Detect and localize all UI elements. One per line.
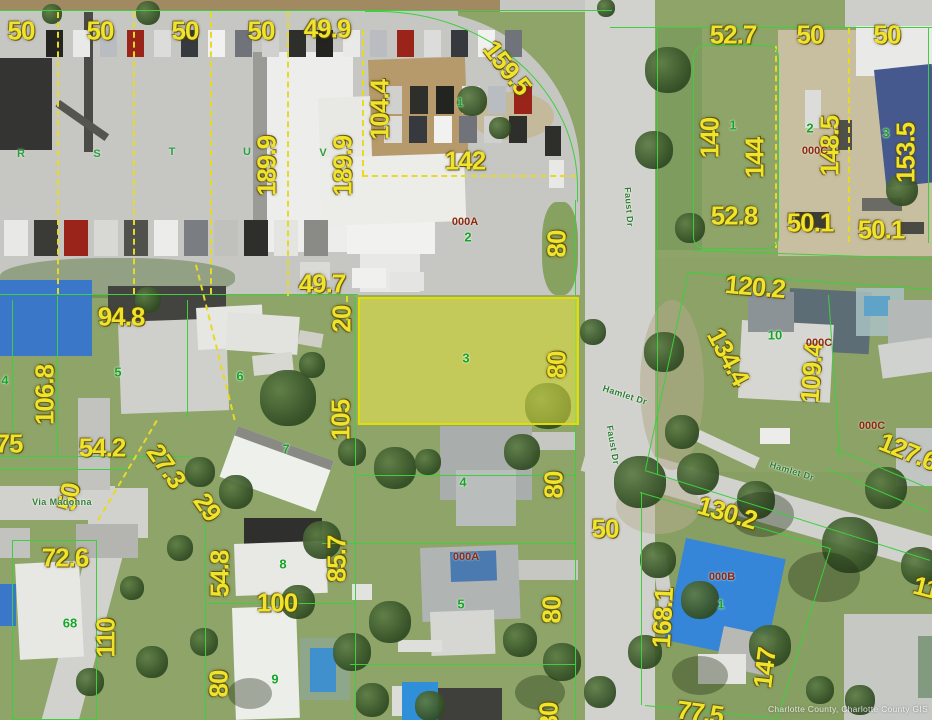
parcel-line: [187, 300, 188, 418]
unit-label: 000C: [802, 145, 828, 157]
dimension-label: 52.8: [711, 201, 758, 232]
survey-dashed-line: [210, 12, 212, 294]
block-letter-label: V: [319, 147, 326, 159]
block-letter-label: S: [93, 148, 100, 160]
building: [864, 296, 890, 316]
building: [0, 280, 92, 356]
dimension-label: 75: [0, 429, 22, 460]
dimension-label: 94.8: [98, 302, 145, 333]
lot-number-label: 5: [114, 365, 121, 380]
dimension-label: 109.4: [794, 342, 829, 404]
lot-number-label: 1: [729, 118, 736, 133]
dimension-label: 50.1: [787, 208, 834, 239]
dimension-label: 50: [8, 16, 35, 47]
dimension-label: 80: [537, 597, 568, 624]
tree: [597, 0, 615, 17]
tree: [42, 4, 62, 24]
lot-number-label: 6: [236, 369, 243, 384]
block-letter-label: R: [17, 148, 25, 160]
parcel-line: [928, 28, 929, 243]
car: [64, 220, 88, 256]
tree: [665, 415, 699, 449]
road: [510, 560, 578, 580]
building: [225, 312, 299, 355]
parcel-line: [322, 543, 575, 544]
dimension-label: 189.9: [328, 136, 359, 196]
parcel-line: [0, 10, 612, 11]
tree: [806, 676, 834, 704]
tree: [503, 623, 537, 657]
tree: [333, 633, 371, 671]
tree-shadow: [228, 678, 272, 709]
tree: [504, 434, 540, 470]
parcel-line: [0, 469, 130, 470]
car: [127, 30, 144, 57]
tree: [635, 131, 673, 169]
tree: [415, 449, 441, 475]
lot-number-label: 1: [717, 597, 724, 612]
car: [304, 220, 328, 256]
parcel-line: [355, 297, 356, 720]
building: [398, 640, 442, 652]
dimension-label: 140: [695, 118, 726, 158]
lot-number-label: 4: [1, 373, 8, 388]
dimension-label: 50: [592, 514, 619, 545]
tree-shadow: [788, 552, 860, 602]
tree: [645, 47, 691, 93]
dimension-label: 153.5: [891, 123, 922, 183]
tree: [681, 581, 719, 619]
car: [274, 220, 298, 256]
lot-number-label: 10: [768, 328, 782, 343]
building: [352, 268, 386, 288]
lot-number-label: 2: [464, 230, 471, 245]
tree: [120, 576, 144, 600]
dimension-label: 80: [204, 671, 235, 698]
dimension-label: 147: [747, 646, 783, 690]
lot-number-label: 3: [462, 351, 469, 366]
dimension-label: 80: [542, 352, 573, 379]
dimension-label: 106.8: [30, 365, 61, 425]
building: [878, 337, 932, 378]
dimension-label: 80: [539, 472, 570, 499]
lot-number-label: 3: [882, 126, 889, 141]
car: [214, 220, 238, 256]
tree: [190, 628, 218, 656]
lot-number-label: 9: [271, 672, 278, 687]
unit-label: 000A: [452, 216, 478, 228]
dimension-label: 20: [327, 306, 358, 333]
block-letter-label: T: [169, 146, 176, 158]
tree: [136, 646, 168, 678]
lot-number-label: 8: [279, 557, 286, 572]
dimension-label: 72.6: [42, 543, 89, 574]
building: [438, 688, 502, 720]
tree: [584, 676, 616, 708]
dimension-label: 80: [534, 703, 565, 720]
building: [298, 330, 324, 348]
gis-watermark: Charlotte County, Charlotte County GIS: [768, 704, 928, 714]
dimension-label: 144: [740, 138, 771, 178]
dimension-label: 49.7: [299, 269, 346, 300]
car: [760, 428, 790, 444]
car: [4, 220, 28, 256]
survey-dashed-line: [287, 12, 289, 296]
unit-label: 000C: [859, 420, 885, 432]
dimension-label: 50: [172, 16, 199, 47]
unit-label: 000A: [453, 551, 479, 563]
dimension-label: 27.3: [140, 438, 192, 494]
tree: [580, 319, 606, 345]
survey-dashed-line: [133, 12, 135, 294]
tree: [299, 352, 325, 378]
lot-number-label: 68: [63, 616, 77, 631]
dimension-label: 80: [542, 231, 573, 258]
building: [390, 272, 424, 291]
tree: [338, 438, 366, 466]
dimension-label: 85.7: [322, 536, 353, 583]
dimension-label: 105: [326, 400, 357, 440]
dimension-label: 52.7: [710, 20, 757, 51]
dimension-label: 168.1: [646, 587, 680, 649]
gis-aerial-parcel-map[interactable]: 5050505049.9159.5104.4189.9189.91428052.…: [0, 0, 932, 720]
car: [244, 220, 268, 256]
lot-number-label: 4: [459, 475, 466, 490]
dimension-label: 49.9: [304, 14, 351, 45]
dimension-label: 50.1: [858, 215, 905, 246]
block-letter-label: U: [243, 146, 251, 158]
tree: [136, 1, 160, 25]
tree: [167, 535, 193, 561]
lot-number-label: 2: [806, 121, 813, 136]
tree-shadow: [672, 656, 728, 695]
tree: [677, 453, 719, 495]
tree: [369, 601, 411, 643]
dimension-label: 104.4: [365, 80, 396, 140]
dimension-label: 50: [797, 20, 824, 51]
dimension-label: 50: [248, 16, 275, 47]
tree: [614, 456, 666, 508]
parcel-line: [350, 664, 575, 665]
tree: [415, 691, 445, 720]
building: [918, 636, 932, 698]
car: [94, 220, 118, 256]
street-name-label: Via Madonna: [32, 497, 92, 507]
lot-number-label: 1: [456, 95, 463, 110]
lot-number-label: 7: [282, 442, 289, 457]
car: [184, 220, 208, 256]
dimension-label: 189.9: [252, 136, 283, 196]
parcel-line: [641, 492, 642, 705]
tree: [374, 447, 416, 489]
tree: [640, 542, 676, 578]
lot-number-label: 5: [457, 597, 464, 612]
building: [0, 58, 52, 150]
dimension-label: 100: [257, 588, 297, 619]
dimension-label: 50: [87, 16, 114, 47]
tree: [260, 370, 316, 426]
dimension-label: 54.2: [79, 433, 126, 464]
survey-dashed-line: [848, 28, 850, 242]
dimension-label: 142: [445, 146, 485, 177]
car: [124, 220, 148, 256]
dimension-label: 50: [874, 20, 901, 51]
car: [154, 30, 171, 57]
tree: [355, 683, 389, 717]
car: [46, 30, 63, 57]
dimension-label: 54.8: [205, 551, 236, 598]
parcel-line: [575, 200, 576, 296]
dimension-label: 120.2: [724, 269, 787, 305]
unit-label: 000B: [709, 571, 735, 583]
car: [34, 220, 58, 256]
car: [154, 220, 178, 256]
unit-label: 000C: [806, 337, 832, 349]
tree: [644, 332, 684, 372]
dimension-label: 110: [91, 619, 122, 658]
survey-dashed-line: [57, 12, 59, 294]
